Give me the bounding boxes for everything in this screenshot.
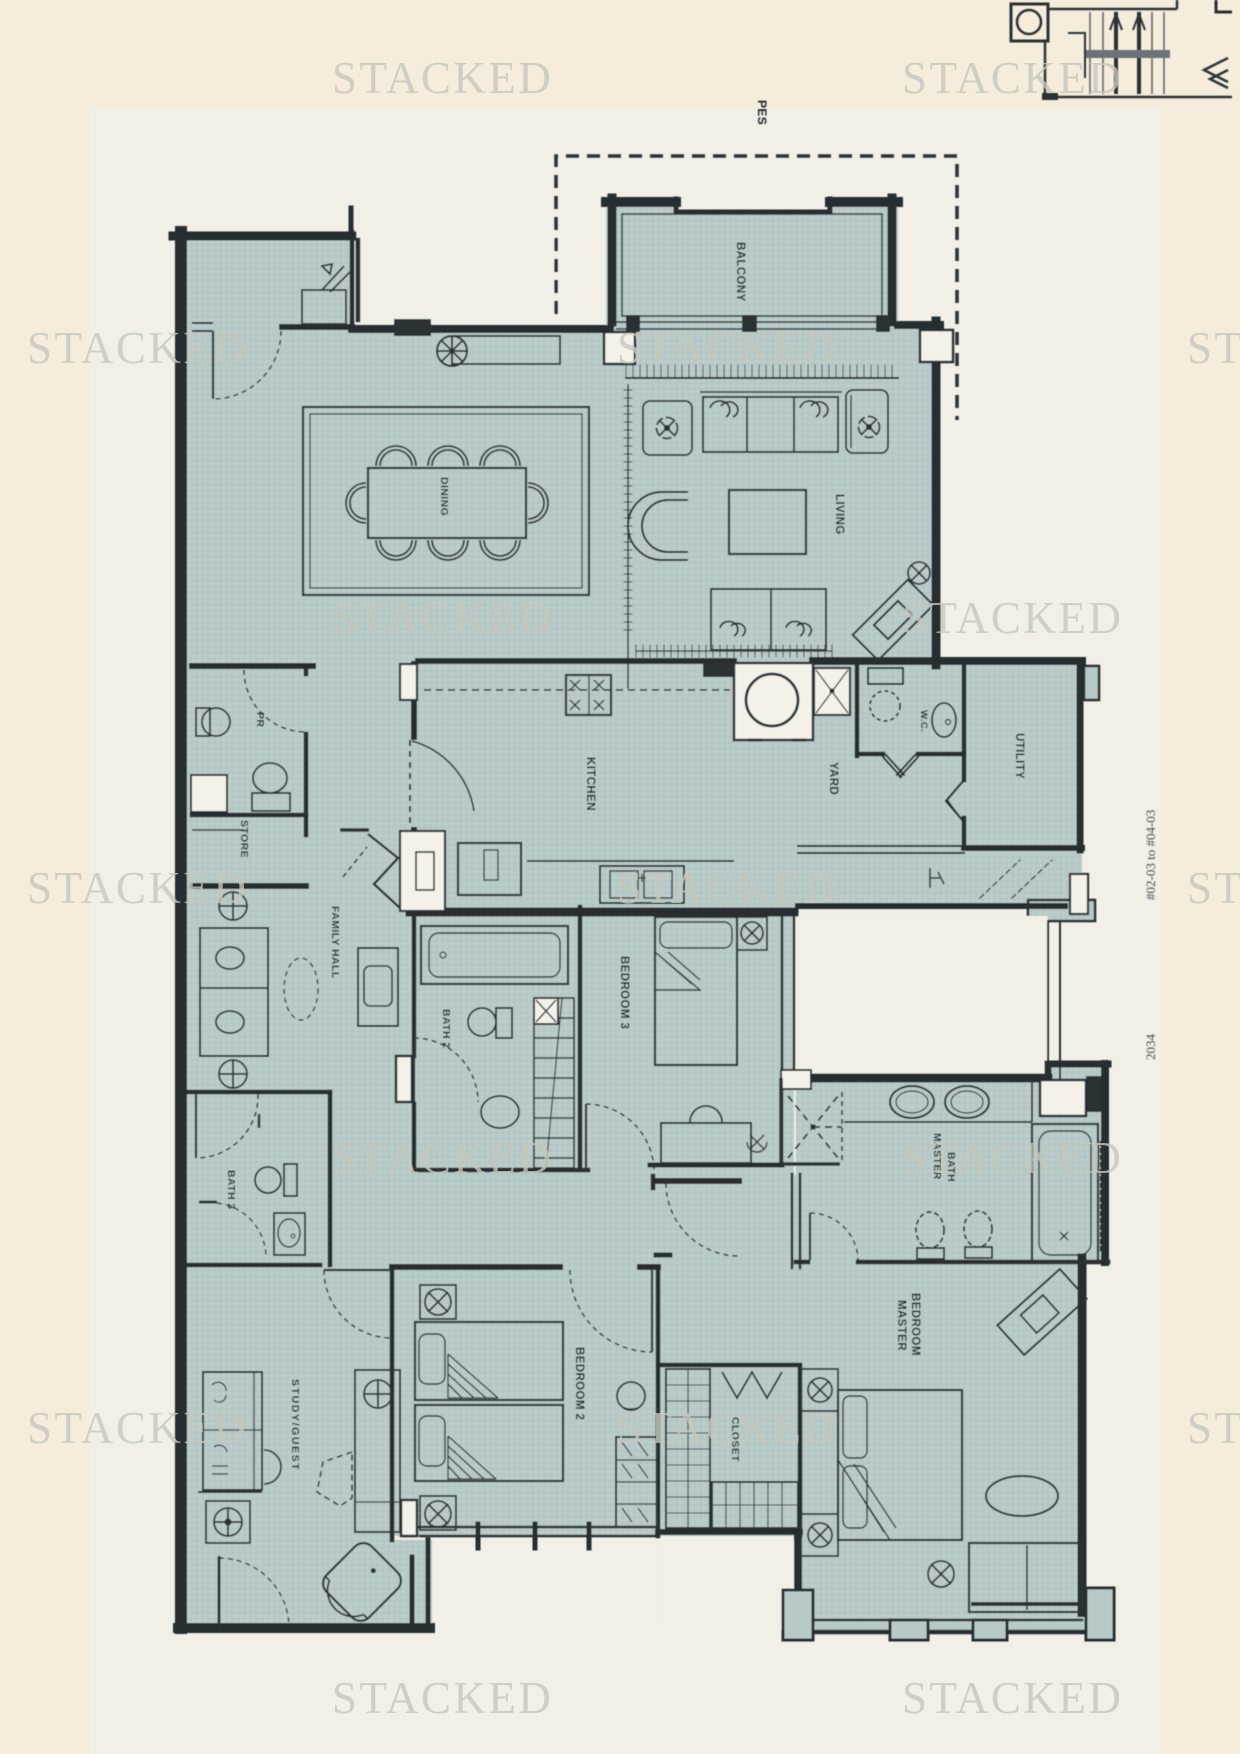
svg-text:UTILITY: UTILITY [1013, 733, 1025, 779]
svg-text:YARD: YARD [827, 762, 839, 795]
svg-text:STACKED: STACKED [617, 1403, 838, 1453]
svg-text:STACKED: STACKED [332, 1673, 553, 1723]
svg-text:STUDY/GUEST: STUDY/GUEST [289, 1379, 301, 1471]
svg-text:PES: PES [755, 100, 769, 125]
svg-text:STACKED: STACKED [1187, 863, 1240, 913]
svg-text:BATH 2: BATH 2 [440, 1009, 452, 1049]
svg-text:STACKED: STACKED [332, 593, 553, 643]
svg-text:BALCONY: BALCONY [734, 242, 746, 302]
svg-text:LIVING: LIVING [833, 494, 845, 535]
svg-text:STACKED: STACKED [332, 53, 553, 103]
svg-text:STACKED: STACKED [27, 323, 248, 373]
svg-text:STORE: STORE [238, 820, 250, 858]
svg-text:STACKED: STACKED [332, 1133, 553, 1183]
svg-text:BATH 3: BATH 3 [225, 1170, 237, 1210]
svg-text:STACKED: STACKED [902, 1673, 1123, 1723]
svg-text:FAMILY HALL: FAMILY HALL [329, 906, 341, 979]
svg-text:STACKED: STACKED [1187, 1403, 1240, 1453]
svg-text:#02-03 to #04-03: #02-03 to #04-03 [1143, 810, 1158, 900]
svg-text:KITCHEN: KITCHEN [584, 757, 596, 811]
svg-text:BEDROOM 3: BEDROOM 3 [618, 956, 630, 1029]
svg-text:STACKED: STACKED [27, 1403, 248, 1453]
svg-text:STACKED: STACKED [902, 593, 1123, 643]
svg-text:2034: 2034 [1143, 1034, 1158, 1061]
svg-text:STACKED: STACKED [902, 53, 1123, 103]
svg-text:BEDROOM: BEDROOM [909, 1293, 921, 1356]
svg-text:STACKED: STACKED [1187, 323, 1240, 373]
svg-text:STACKED: STACKED [902, 1133, 1123, 1183]
svg-text:BEDROOM 2: BEDROOM 2 [573, 1347, 585, 1420]
svg-text:PR: PR [254, 712, 266, 727]
svg-text:STACKED: STACKED [617, 323, 838, 373]
svg-text:W.C.: W.C. [918, 710, 929, 732]
svg-text:MASTER: MASTER [895, 1300, 907, 1351]
svg-text:DINING: DINING [438, 477, 450, 516]
svg-text:STACKED: STACKED [27, 863, 248, 913]
svg-text:STACKED: STACKED [617, 863, 838, 913]
